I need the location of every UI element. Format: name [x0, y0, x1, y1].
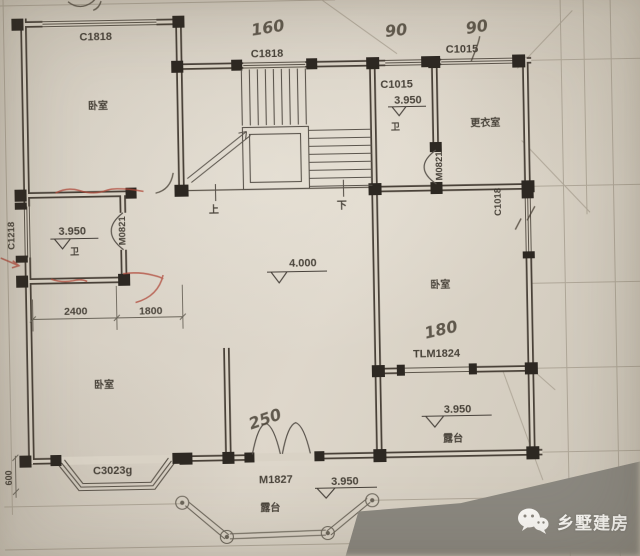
door-m1827-leaf-right — [282, 422, 311, 454]
pencil-90-left: 90 — [384, 20, 408, 41]
red-door-arc — [135, 275, 163, 303]
window-label-c1818-stair: C1818 — [251, 48, 284, 61]
level-value-terrace-east: 3.950 — [444, 403, 472, 416]
room-label-terrace-south: 露台 — [260, 501, 280, 514]
level-marks — [48, 105, 493, 503]
door-label-m1827: M1827 — [259, 474, 293, 487]
level-hall — [267, 271, 327, 283]
room-label-bedroom-east: 卧室 — [430, 278, 450, 291]
door-label-m0821-north: M0821 — [434, 151, 446, 181]
level-value-hall: 4.000 — [289, 257, 317, 270]
window-label-c1218: C1218 — [6, 222, 18, 250]
level-terrace-east — [422, 415, 492, 427]
dim-2400: 2400 — [64, 305, 88, 317]
stairs — [185, 67, 372, 201]
window-label-c1015-room: C1015 — [380, 78, 413, 91]
blueprint-photo: 2400 1800 600 C1818 C1818 C1015 C1015 C1… — [0, 0, 640, 556]
level-bath-north — [388, 106, 426, 116]
pencil-180: 180 — [423, 317, 460, 343]
pencil-tick-right-b — [515, 218, 521, 229]
pencil-250: 250 — [246, 405, 284, 434]
piers — [11, 9, 539, 468]
door-label-tlm1824: TLM1824 — [413, 348, 461, 361]
room-label-bedroom-nw: 卧室 — [88, 99, 108, 112]
pencil-90-right: 90 — [464, 16, 489, 38]
watermark-text: 乡墅建房 — [557, 509, 629, 534]
floor-plan-svg: 2400 1800 600 C1818 C1818 C1015 C1015 C1… — [0, 0, 640, 556]
room-label-bedroom-sw: 卧室 — [94, 378, 114, 391]
level-value-bath-north: 3.950 — [394, 94, 422, 107]
stair-label-up: 上 — [209, 203, 219, 216]
level-value-bath-west: 3.950 — [58, 225, 86, 238]
stair-label-down: 下 — [337, 200, 347, 212]
level-value-terrace-south: 3.950 — [331, 476, 359, 489]
balcony-railing — [176, 493, 380, 545]
pencil-door-arc-nw — [155, 173, 173, 193]
room-label-terrace-east: 露台 — [443, 432, 463, 445]
level-terrace-south — [315, 487, 377, 498]
room-label-bath-west: 卫 — [70, 247, 79, 257]
floor-plan-drawing: 2400 1800 600 C1818 C1818 C1015 C1015 C1… — [0, 0, 640, 556]
window-label-c1018: C1018 — [493, 188, 505, 216]
window-label-c1818-nw: C1818 — [79, 31, 112, 44]
room-label-bath-north: 卫 — [391, 122, 400, 132]
wechat-icon — [516, 507, 550, 535]
room-label-dressing: 更衣室 — [470, 116, 500, 130]
stair-break-line — [186, 131, 251, 182]
watermark: 乡墅建房 — [516, 507, 629, 535]
walls — [14, 9, 542, 464]
pencil-squiggle-top-left — [68, 0, 101, 11]
dim-1800: 1800 — [139, 305, 163, 317]
window-label-c3023g: C3023g — [93, 465, 132, 478]
pencil-160: 160 — [250, 16, 286, 40]
dim-600: 600 — [4, 470, 14, 485]
door-label-m0821-west: M0821 — [117, 215, 129, 245]
